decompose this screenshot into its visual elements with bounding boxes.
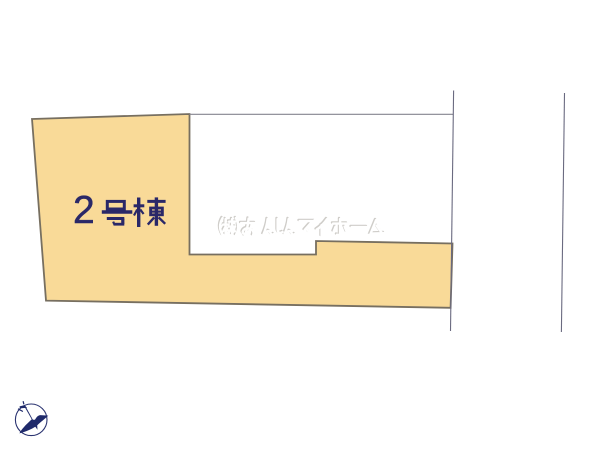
svg-text:2: 2 [73, 189, 95, 232]
